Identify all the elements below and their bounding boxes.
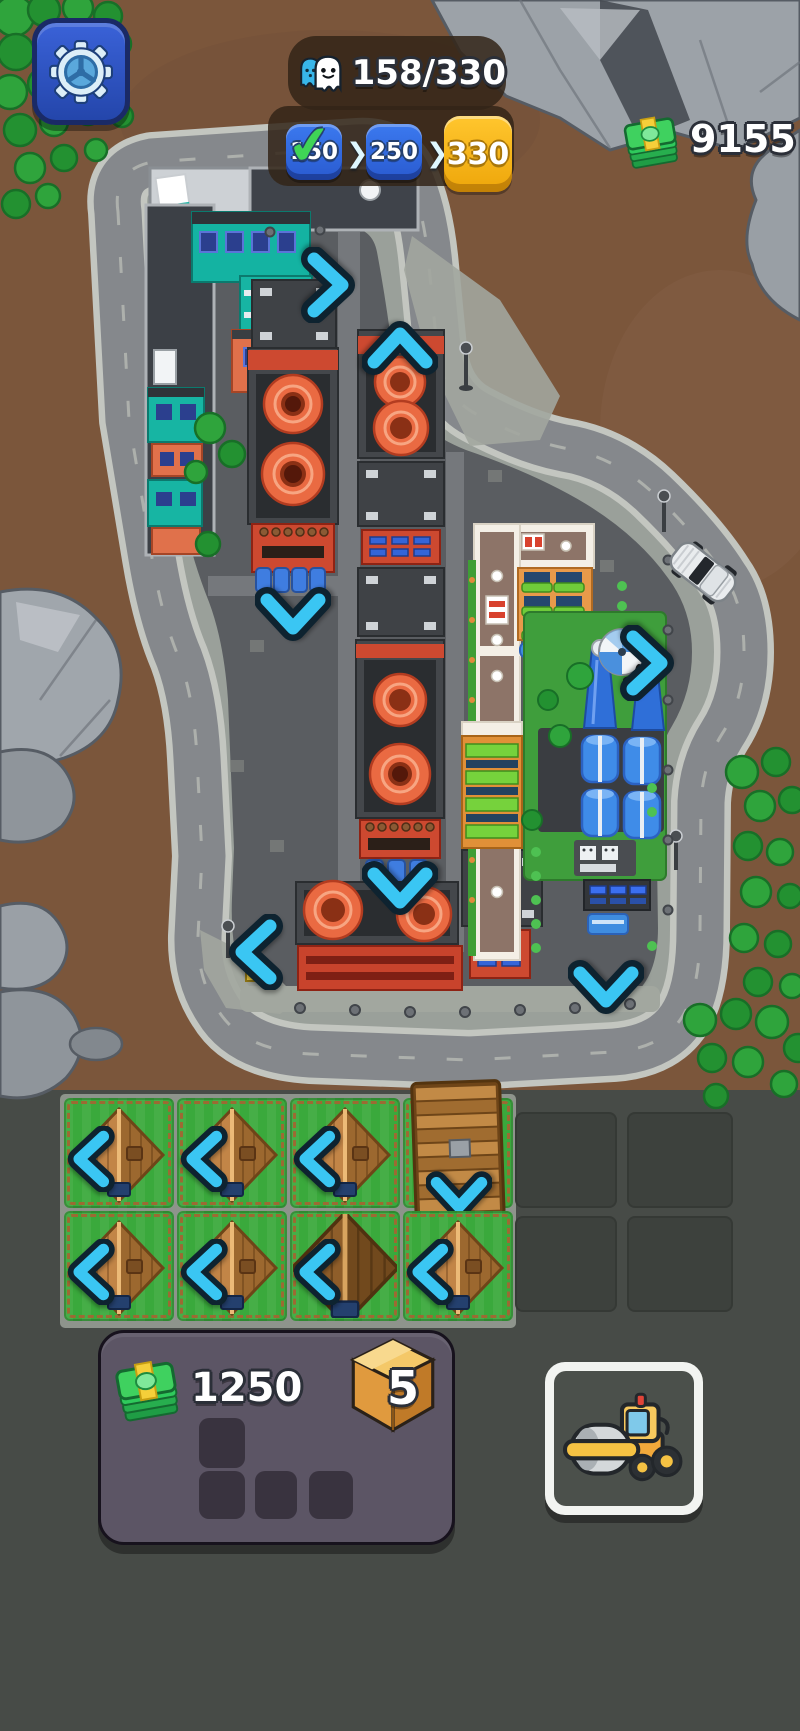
house-cell-small-house[interactable] bbox=[64, 1211, 174, 1321]
panel-money-value: 1250 bbox=[191, 1365, 302, 1411]
milestone-badge-330: 330 bbox=[444, 116, 512, 192]
money-value: 9155 bbox=[690, 117, 796, 161]
population-icon bbox=[296, 44, 346, 102]
map-arrow-left[interactable] bbox=[220, 914, 296, 990]
empty-plot-slot[interactable] bbox=[515, 1112, 617, 1208]
house-cell-small-house[interactable] bbox=[177, 1098, 287, 1208]
cash-icon bbox=[111, 1351, 183, 1423]
steamroller-icon bbox=[563, 1388, 685, 1490]
resources-panel: 1250 5 bbox=[98, 1330, 455, 1545]
house-arrow-left[interactable] bbox=[173, 1126, 239, 1192]
milestone-badge-250: 250 bbox=[366, 124, 422, 180]
check-icon: ✔ bbox=[284, 113, 336, 178]
panel-slot[interactable] bbox=[255, 1471, 297, 1519]
milestone-badge-150: 150 ✔ bbox=[286, 124, 342, 180]
box-counter: 5 bbox=[347, 1335, 439, 1435]
milestone-value: 250 bbox=[370, 139, 418, 165]
empty-plot-slot[interactable] bbox=[627, 1216, 733, 1312]
panel-slot[interactable] bbox=[199, 1418, 245, 1468]
map-arrow-right[interactable] bbox=[607, 625, 683, 701]
house-cell-small-house[interactable] bbox=[64, 1098, 174, 1208]
settings-button[interactable] bbox=[32, 18, 130, 125]
map-arrow-up[interactable] bbox=[362, 312, 438, 388]
gear-icon bbox=[48, 39, 114, 105]
panel-slot[interactable] bbox=[199, 1471, 245, 1519]
house-cell-small-house[interactable] bbox=[290, 1098, 400, 1208]
house-cell-small-house[interactable] bbox=[403, 1211, 513, 1321]
house-arrow-left[interactable] bbox=[60, 1126, 126, 1192]
build-roller-button[interactable] bbox=[545, 1362, 703, 1515]
factory-column-b bbox=[356, 330, 444, 882]
game-screen: 158/330 150 ✔ ❯ 250 ❯ 330 9155 bbox=[0, 0, 800, 1731]
map-arrow-down[interactable] bbox=[568, 947, 644, 1023]
factory-column-a bbox=[248, 280, 338, 592]
map-arrow-right[interactable] bbox=[288, 247, 364, 323]
milestone-value: 330 bbox=[447, 137, 510, 172]
cash-icon bbox=[620, 108, 682, 170]
house-arrow-left[interactable] bbox=[286, 1239, 352, 1305]
house-cell-long-house[interactable] bbox=[403, 1098, 513, 1208]
house-arrow-left[interactable] bbox=[60, 1239, 126, 1305]
box-count: 5 bbox=[387, 1361, 419, 1415]
population-counter: 158/330 bbox=[288, 36, 506, 110]
empty-plot-slot[interactable] bbox=[515, 1216, 617, 1312]
house-arrow-left[interactable] bbox=[173, 1239, 239, 1305]
panel-slot[interactable] bbox=[309, 1471, 353, 1519]
house-cell-small-house[interactable] bbox=[177, 1211, 287, 1321]
house-cell-big-house[interactable] bbox=[290, 1211, 400, 1321]
empty-plot-slot[interactable] bbox=[627, 1112, 733, 1208]
money-counter: 9155 bbox=[620, 108, 796, 170]
house-arrow-left[interactable] bbox=[286, 1126, 352, 1192]
house-arrow-left[interactable] bbox=[399, 1239, 465, 1305]
population-value: 158/330 bbox=[352, 53, 506, 93]
map-arrow-down[interactable] bbox=[362, 848, 438, 924]
map-arrow-down[interactable] bbox=[255, 574, 331, 650]
